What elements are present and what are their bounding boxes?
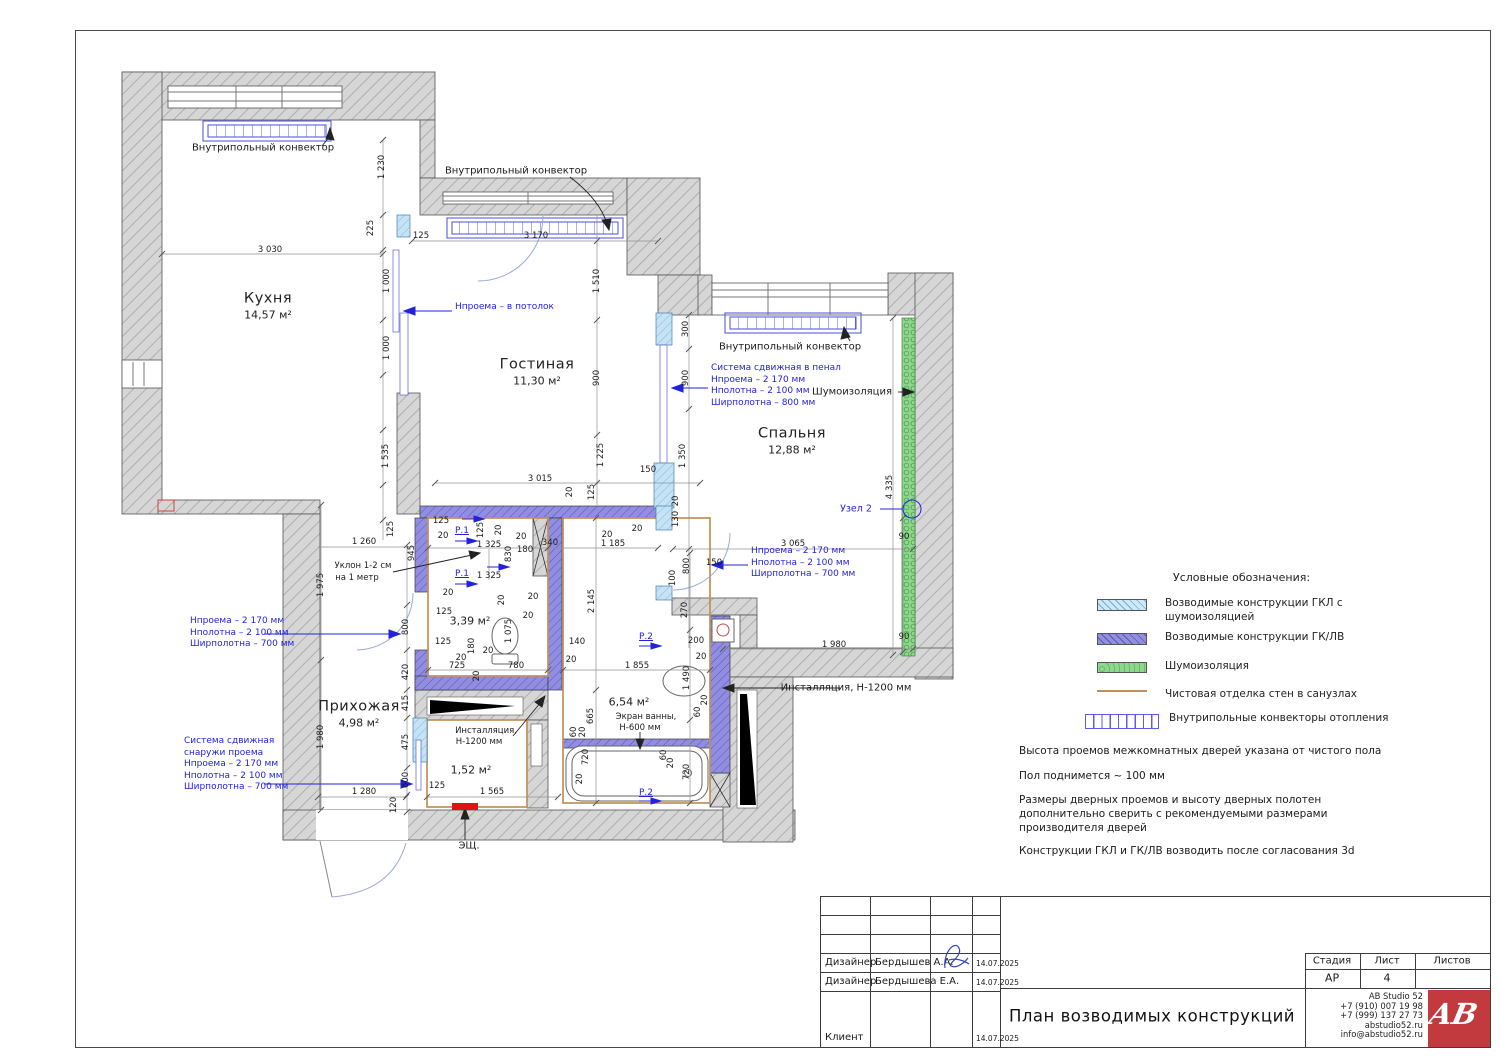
dim-label: 3 030: [258, 245, 282, 255]
room-area: 1,52 м²: [451, 764, 492, 777]
legend-item: Возводимые конструкции ГК/ЛВ: [1097, 631, 1344, 645]
stage-value: АР: [1325, 972, 1339, 985]
dim-label: 3 015: [528, 474, 552, 484]
legend-item: Чистовая отделка стен в санузлах: [1097, 688, 1357, 702]
legend-item: Возводимые конструкции ГКЛ сшумоизоляцие…: [1097, 597, 1343, 624]
room-name: Прихожая: [318, 699, 400, 715]
legend-swatch-snd: [1097, 662, 1147, 673]
legend-label: Возводимые конструкции ГК/ЛВ: [1165, 631, 1344, 645]
dim-label: 125: [413, 231, 429, 241]
dim-label: Р.1: [455, 569, 469, 579]
dim-label: 20: [528, 592, 539, 602]
note-line: Высота проемов межкомнатных дверей указа…: [1019, 745, 1381, 759]
dim-label: 20: [472, 671, 482, 682]
dim-label: Внутрипольный конвектор: [719, 342, 861, 353]
dim-label: 1 230: [377, 155, 387, 179]
dim-label: 1 325: [477, 540, 501, 550]
dim-label: 20: [497, 595, 507, 606]
dim-label: 20: [671, 496, 681, 507]
dim-label: на 1 метр: [335, 573, 379, 583]
legend-swatch-conv: [1085, 714, 1159, 729]
logo-text: AB: [1428, 997, 1481, 1031]
dim-label: 20: [700, 695, 710, 706]
legend-item: Шумоизоляция: [1097, 660, 1249, 674]
dim-label: 90: [899, 532, 910, 542]
dim-label: 125: [435, 637, 451, 647]
legend-label-line: Внутрипольные конвекторы отопления: [1169, 712, 1389, 726]
client-date: 14.07.2025: [976, 1034, 1019, 1043]
annotation-line: Ширполотна – 700 мм: [751, 569, 855, 581]
legend-label-line: шумоизоляцией: [1165, 611, 1343, 625]
annotation-line: Ширполотна – 700 мм: [190, 639, 294, 651]
room-area: 4,98 м²: [318, 717, 400, 730]
sheet-number: 4: [1384, 972, 1391, 985]
room-label: Гостиная11,30 м²: [500, 357, 575, 388]
legend-swatch-gkl: [1097, 599, 1147, 611]
annotation-line: Система сдвижная в пенал: [711, 363, 841, 375]
note-line: Размеры дверных проемов и высоту дверных…: [1019, 794, 1327, 808]
room-area: 11,30 м²: [500, 375, 575, 388]
door-annotation: Нпроема – 2 170 ммНполотна – 2 100 ммШир…: [190, 616, 294, 651]
dim-label: 20: [523, 611, 534, 621]
dim-label: 100: [668, 570, 678, 586]
dim-label: Н-600 мм: [619, 723, 660, 733]
note-paragraph: Высота проемов межкомнатных дверей указа…: [1019, 745, 1381, 759]
dim-label: Экран ванны,: [616, 712, 677, 722]
dim-label: 720: [581, 749, 591, 765]
dim-label: Р.2: [639, 788, 653, 798]
dim-label: 600: [401, 772, 411, 788]
legend-label-line: Чистовая отделка стен в санузлах: [1165, 688, 1357, 702]
dim-label: 20: [575, 774, 585, 785]
dim-label: 120: [389, 797, 399, 813]
legend-title: Условные обозначения:: [1173, 571, 1310, 584]
dim-label: 125: [476, 522, 486, 538]
note-line: производителя дверей: [1019, 822, 1327, 836]
annotation-line: Нполотна – 2 100 мм: [190, 628, 294, 640]
dim-label: 125: [433, 516, 449, 526]
annotation-line: Нпроема – 2 170 мм: [711, 375, 841, 387]
dim-label: Уклон 1-2 см: [335, 561, 392, 571]
legend-label-line: Возводимые конструкции ГК/ЛВ: [1165, 631, 1344, 645]
sheet-header: Лист: [1374, 956, 1399, 967]
dim-label: 20: [516, 532, 527, 542]
legend-label-line: Возводимые конструкции ГКЛ с: [1165, 597, 1343, 611]
room-name: Спальня: [758, 426, 826, 442]
dim-label: 125: [386, 521, 396, 537]
dim-label: 20: [443, 588, 454, 598]
client-role: Клиент: [825, 1032, 864, 1043]
room-label: 3,39 м²: [450, 613, 491, 628]
dim-label: 1 000: [382, 269, 392, 293]
note-line: Пол поднимется ~ 100 мм: [1019, 770, 1165, 784]
room-name: Кухня: [244, 291, 292, 307]
dim-label: 1 225: [596, 443, 606, 467]
room-name: Гостиная: [500, 357, 575, 373]
dim-label: 200: [688, 636, 704, 646]
dim-label: 1 185: [601, 539, 625, 549]
note-paragraph: Размеры дверных проемов и высоту дверных…: [1019, 794, 1327, 835]
designer2-name: Бердышева Е.А.: [875, 976, 959, 987]
dim-label: Н-1200 мм: [456, 737, 503, 747]
legend-label: Чистовая отделка стен в санузлах: [1165, 688, 1357, 702]
dim-label: 1 075: [504, 619, 514, 643]
dim-label: 20: [494, 525, 504, 536]
dim-label: 20: [483, 646, 494, 656]
dim-label: 3 170: [524, 231, 548, 241]
dim-label: 4 335: [885, 475, 895, 499]
company-logo: AB: [1428, 990, 1490, 1047]
dim-label: 800: [682, 558, 692, 574]
door-annotation: Система сдвижнаяснаружи проемаНпроема – …: [184, 736, 288, 794]
legend-swatch-gklv: [1097, 633, 1147, 645]
annotation-line: Нполотна – 2 100 мм: [711, 386, 841, 398]
dim-label: 665: [586, 708, 596, 724]
note-paragraph: Пол поднимется ~ 100 мм: [1019, 770, 1165, 784]
dim-label: Узел 2: [840, 504, 872, 515]
door-annotation: Нпроема – 2 170 ммНполотна – 2 100 ммШир…: [751, 546, 855, 581]
dim-label: 150: [640, 465, 656, 475]
dim-label: 945: [407, 545, 417, 561]
drawing-sheet: Внутрипольный конвекторВнутрипольный кон…: [0, 0, 1500, 1059]
dim-label: 60: [659, 750, 669, 761]
annotation-line: снаружи проема: [184, 748, 288, 760]
dim-label: 20: [632, 524, 643, 534]
annotation-line: Нпроема – 2 170 мм: [184, 759, 288, 771]
dim-label: 1 325: [477, 571, 501, 581]
door-annotation: Система сдвижная в пеналНпроема – 2 170 …: [711, 363, 841, 409]
room-label: Спальня12,88 м²: [758, 426, 826, 457]
dim-label: 125: [429, 781, 445, 791]
designer1-date: 14.07.2025: [976, 959, 1019, 968]
dim-label: 20: [566, 655, 577, 665]
dim-label: 340: [542, 538, 558, 548]
company-line: info@abstudio52.ru: [1230, 1030, 1423, 1040]
signature: [935, 938, 975, 974]
dim-label: ЭЩ.: [458, 841, 479, 852]
door-annotation: Нпроема – в потолок: [455, 302, 554, 314]
annotation-line: Нпроема – 2 170 мм: [190, 616, 294, 628]
annotation-line: Нполотна – 2 100 мм: [184, 771, 288, 783]
dim-label: Р.2: [639, 632, 653, 642]
dim-label: 1 980: [822, 640, 846, 650]
dim-label: 180: [517, 545, 533, 555]
legend-item: Внутрипольные конвекторы отопления: [1085, 712, 1389, 729]
dim-label: 475: [401, 734, 411, 750]
dim-label: 20: [578, 727, 588, 738]
annotation-line: Ширполотна – 700 мм: [184, 782, 288, 794]
dim-label: 830: [504, 546, 514, 562]
dim-label: 415: [401, 695, 411, 711]
dim-label: 180: [467, 638, 477, 654]
dim-label: 1 565: [480, 787, 504, 797]
dim-label: Внутрипольный конвектор: [445, 166, 587, 177]
dim-label: 420: [401, 664, 411, 680]
dim-label: 20: [696, 652, 707, 662]
room-label: Прихожая4,98 м²: [318, 699, 400, 730]
room-label: Кухня14,57 м²: [244, 291, 292, 322]
designer2-role: Дизайнер: [825, 976, 876, 987]
dim-label: 300: [681, 321, 691, 337]
dim-label: 1 975: [316, 573, 326, 597]
annotation-line: Ширполотна – 800 мм: [711, 398, 841, 410]
dim-label: 20: [565, 487, 575, 498]
dim-label: Инсталляция,: [455, 726, 517, 736]
dim-label: Инсталляция, Н-1200 мм: [781, 683, 912, 694]
room-area: 6,54 м²: [609, 696, 650, 709]
dim-label: 800: [401, 619, 411, 635]
dim-label: 780: [508, 661, 524, 671]
dim-label: 1 000: [382, 336, 392, 360]
sound-insulation-strip: [902, 318, 915, 656]
dim-label: 270: [680, 602, 690, 618]
legend-label: Внутрипольные конвекторы отопления: [1169, 712, 1389, 726]
legend-swatch-fin: [1097, 690, 1147, 692]
dim-label: 225: [366, 220, 376, 236]
dim-label: 900: [592, 370, 602, 386]
legend-label-line: Шумоизоляция: [1165, 660, 1249, 674]
annotation-line: Нпроема – 2 170 мм: [751, 546, 855, 558]
note-paragraph: Конструкции ГКЛ и ГК/ЛВ возводить после …: [1019, 845, 1355, 859]
dim-label: 720: [682, 764, 692, 780]
dim-label: 130: [671, 511, 681, 527]
annotation-line: Нполотна – 2 100 мм: [751, 558, 855, 570]
room-label: 1,52 м²: [451, 762, 492, 777]
sheets-header: Листов: [1433, 956, 1470, 967]
dim-label: 90: [899, 632, 910, 642]
legend-label: Возводимые конструкции ГКЛ сшумоизоляцие…: [1165, 597, 1343, 624]
dim-label: 2 145: [587, 589, 597, 613]
stage-header: Стадия: [1313, 956, 1351, 967]
legend-label: Шумоизоляция: [1165, 660, 1249, 674]
dim-label: 125: [587, 484, 597, 500]
designer2-date: 14.07.2025: [976, 978, 1019, 987]
note-line: дополнительно сверить с рекомендуемыми р…: [1019, 808, 1327, 822]
dim-label: 1 280: [352, 787, 376, 797]
dim-label: Внутрипольный конвектор: [192, 143, 334, 154]
designer1-role: Дизайнер: [825, 957, 876, 968]
electrical-panel: [452, 803, 478, 810]
dim-label: 150: [706, 558, 722, 568]
room-area: 14,57 м²: [244, 309, 292, 322]
note-line: Конструкции ГКЛ и ГК/ЛВ возводить после …: [1019, 845, 1355, 859]
dim-label: 140: [569, 637, 585, 647]
dim-label: 1 535: [381, 444, 391, 468]
dim-label: 725: [449, 661, 465, 671]
room-label: 6,54 м²: [609, 694, 650, 709]
annotation-line: Система сдвижная: [184, 736, 288, 748]
room-area: 3,39 м²: [450, 615, 491, 628]
dim-label: 1 260: [352, 537, 376, 547]
dim-label: 1 510: [592, 269, 602, 293]
dim-label: 20: [438, 531, 449, 541]
annotation-line: Нпроема – в потолок: [455, 302, 554, 314]
dim-label: Р.1: [455, 526, 469, 536]
dim-label: 1 855: [625, 661, 649, 671]
dim-label: 1 350: [678, 444, 688, 468]
dim-label: 60: [693, 707, 703, 718]
dim-label: 1 490: [682, 666, 692, 690]
dim-label: 900: [681, 370, 691, 386]
room-area: 12,88 м²: [758, 444, 826, 457]
company-info: AB Studio 52+7 (910) 007 19 98+7 (999) 1…: [1230, 992, 1423, 1040]
